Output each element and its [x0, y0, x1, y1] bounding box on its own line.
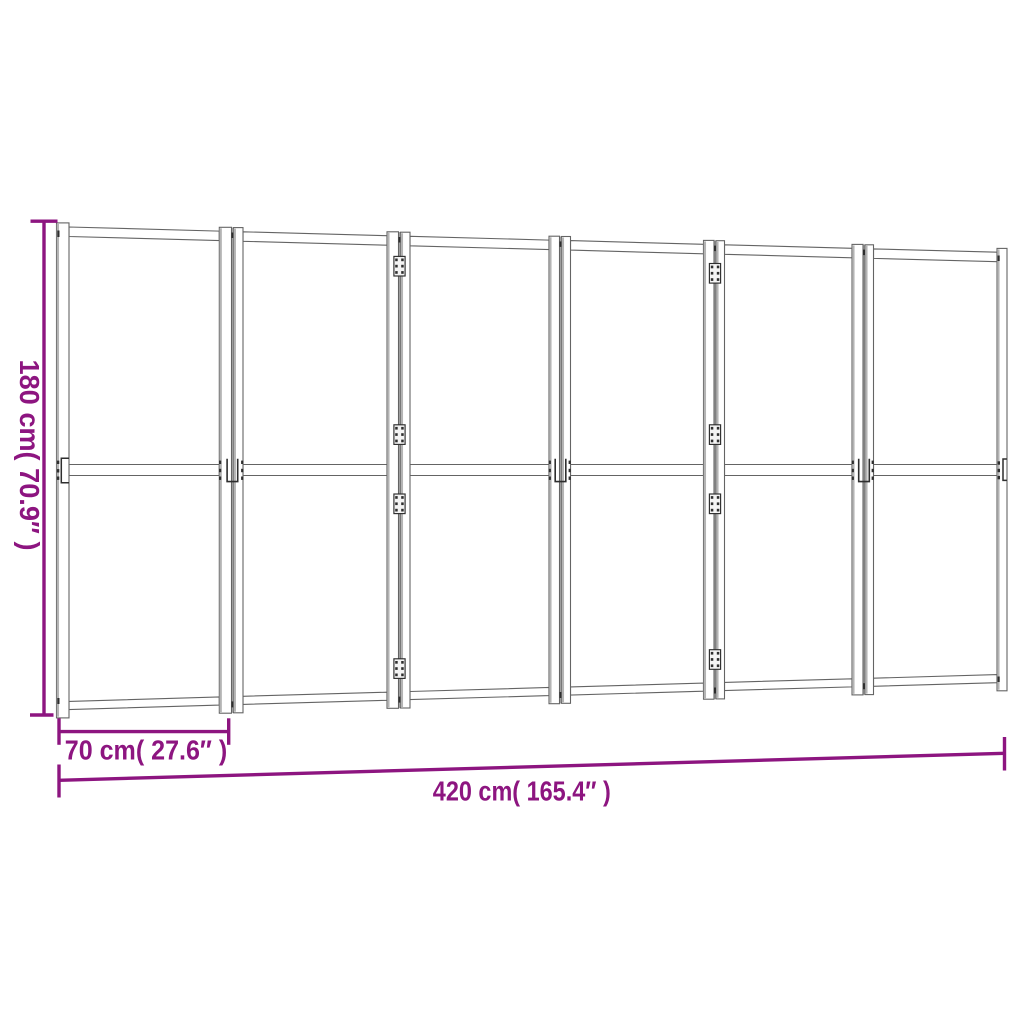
svg-text:180 cm( 70.9″ ): 180 cm( 70.9″ )	[14, 360, 45, 551]
svg-text:70 cm( 27.6″ ): 70 cm( 27.6″ )	[65, 735, 228, 766]
svg-text:420 cm( 165.4″ ): 420 cm( 165.4″ )	[433, 776, 611, 807]
